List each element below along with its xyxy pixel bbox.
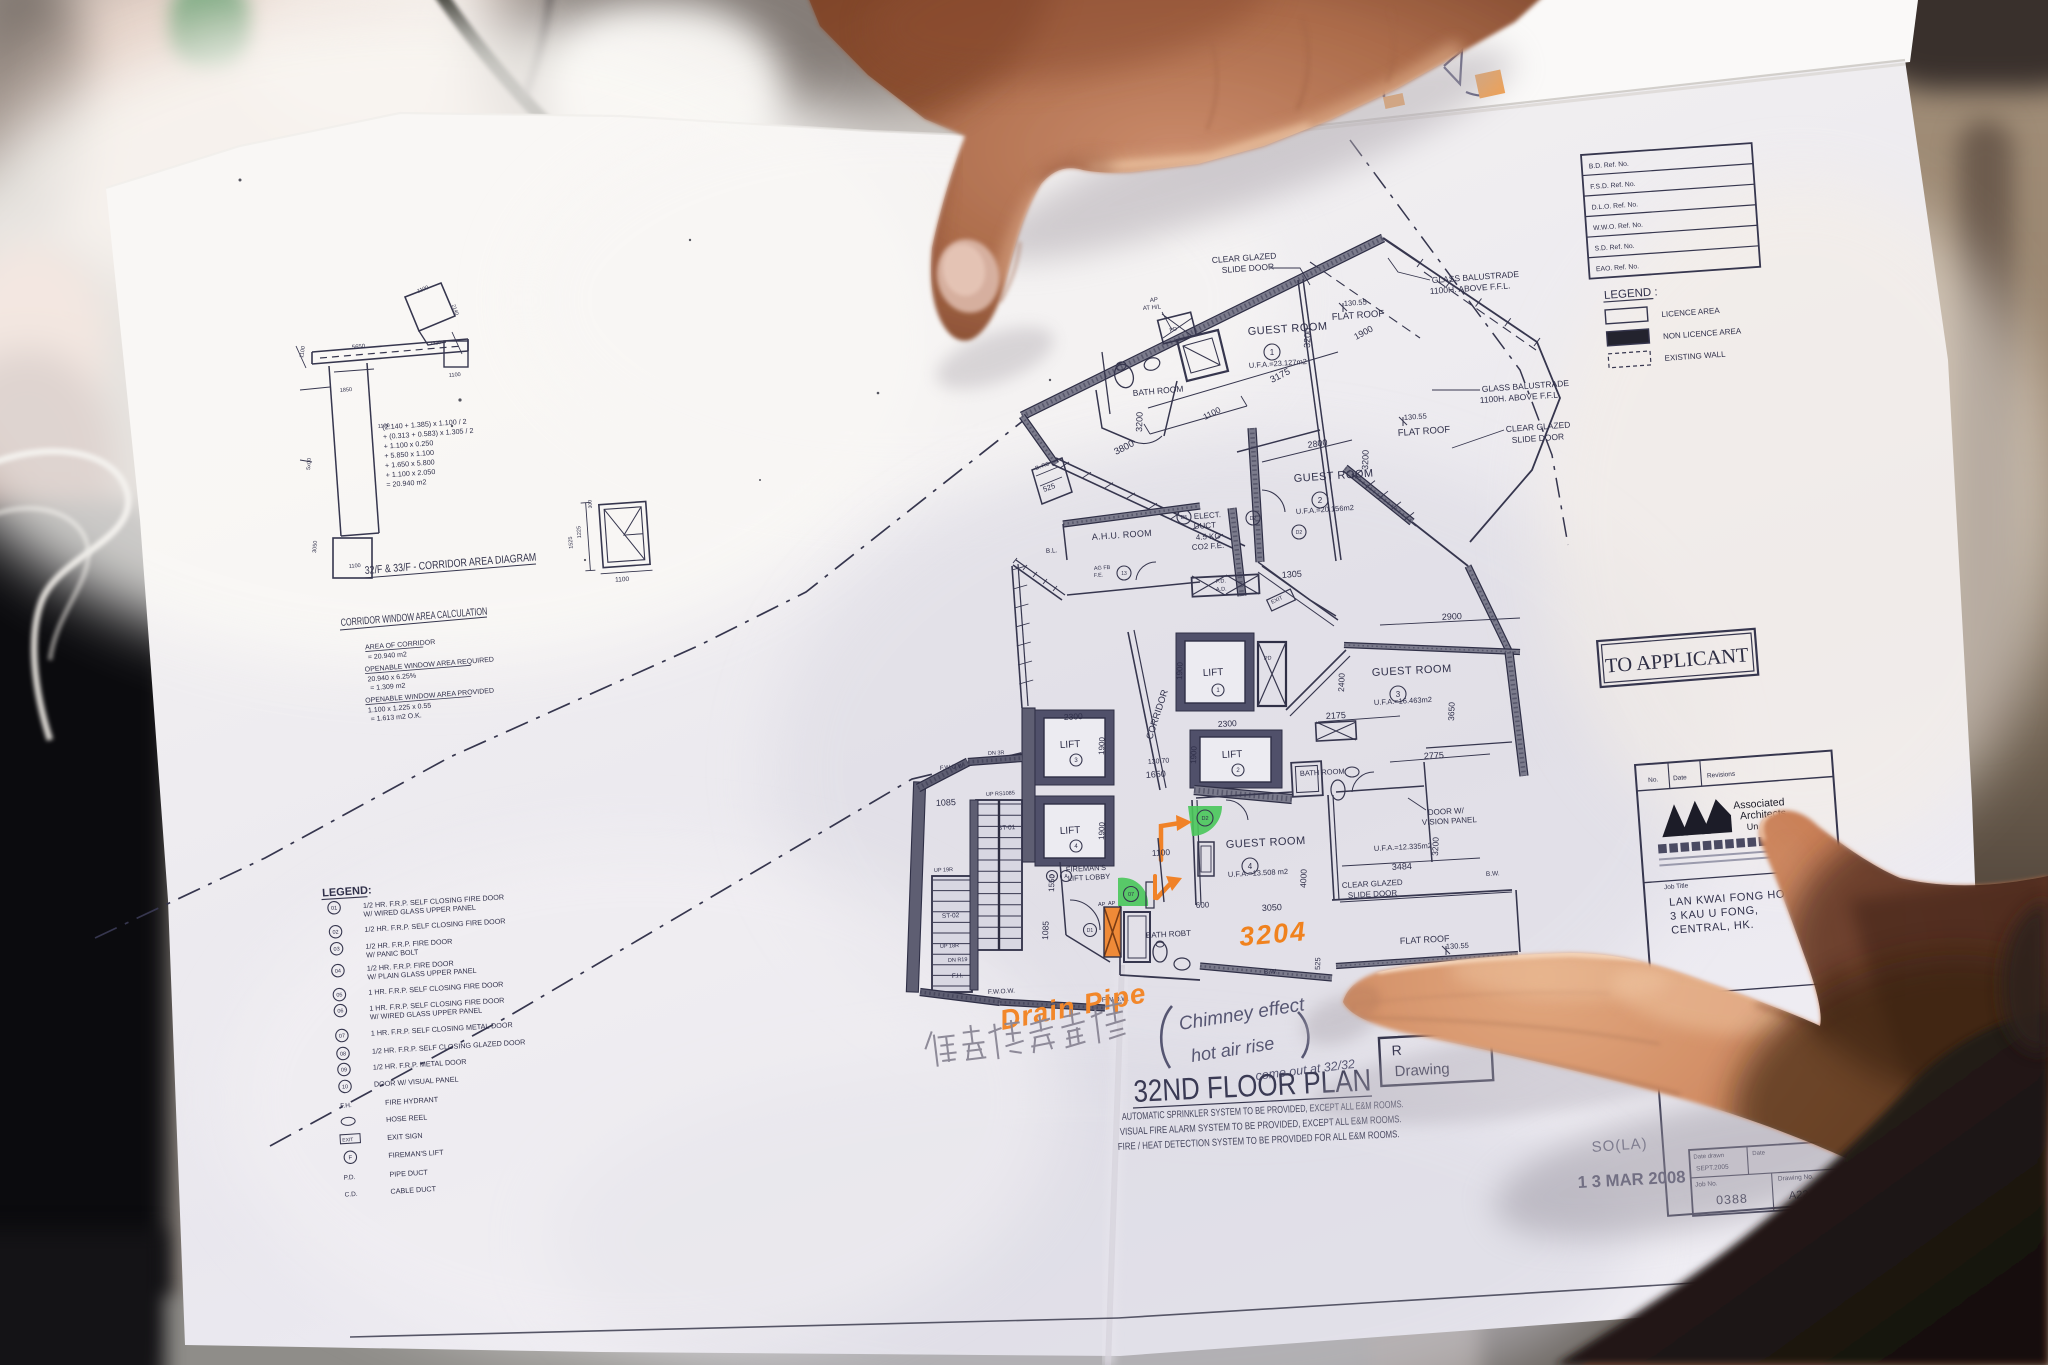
svg-text:2300: 2300 — [1064, 711, 1084, 722]
svg-text:2900: 2900 — [1442, 611, 1463, 622]
svg-text:5650: 5650 — [352, 344, 366, 351]
svg-text:1900: 1900 — [1175, 661, 1185, 680]
svg-text:A.D.: A.D. — [1216, 586, 1227, 593]
svg-text:F.W.O.W.: F.W.O.W. — [988, 988, 1016, 996]
svg-text:D1: D1 — [1087, 928, 1094, 934]
svg-text:09: 09 — [341, 1067, 347, 1073]
svg-text:LIFT: LIFT — [1222, 749, 1243, 761]
svg-text:AP: AP — [1108, 901, 1116, 907]
svg-text:10: 10 — [342, 1084, 348, 1090]
svg-text:08: 08 — [340, 1051, 346, 1057]
svg-text:1225: 1225 — [576, 526, 583, 539]
svg-text:2: 2 — [1318, 496, 1323, 505]
svg-text:1900: 1900 — [1097, 736, 1107, 755]
svg-text:3204: 3204 — [1238, 916, 1308, 952]
svg-text:No.: No. — [1648, 776, 1659, 784]
svg-text:ELECT.: ELECT. — [1194, 510, 1222, 521]
svg-text:300: 300 — [587, 500, 594, 509]
svg-text:525: 525 — [1313, 957, 1322, 970]
svg-text:AP: AP — [1150, 297, 1159, 304]
svg-text:D2: D2 — [1250, 516, 1257, 522]
svg-text:P.D.: P.D. — [1216, 578, 1227, 585]
svg-text:1100: 1100 — [1152, 847, 1171, 858]
svg-text:05: 05 — [336, 992, 342, 998]
svg-text:3200: 3200 — [1134, 412, 1145, 432]
svg-text:3050: 3050 — [312, 540, 319, 553]
svg-text:B.L.: B.L. — [1046, 547, 1058, 555]
svg-text:LIFT: LIFT — [1203, 667, 1224, 679]
svg-text:D5: D5 — [1181, 515, 1188, 521]
svg-text:130.70: 130.70 — [1148, 758, 1170, 766]
svg-text:LIFT: LIFT — [1060, 739, 1081, 751]
svg-text:1320: 1320 — [430, 340, 442, 347]
svg-text:07: 07 — [1128, 892, 1134, 898]
svg-text:06: 06 — [337, 1008, 343, 1014]
svg-text:1850: 1850 — [340, 387, 353, 394]
svg-text:3484: 3484 — [1392, 861, 1413, 872]
svg-text:P.D.: P.D. — [343, 1174, 355, 1182]
svg-text:D2: D2 — [1201, 816, 1208, 822]
svg-text:1550: 1550 — [1047, 873, 1057, 892]
svg-text:03: 03 — [333, 947, 339, 953]
svg-text:1305: 1305 — [1281, 569, 1302, 580]
svg-text:Un: Un — [1746, 821, 1758, 832]
svg-text:1085: 1085 — [936, 797, 957, 808]
svg-text:3650: 3650 — [1446, 702, 1457, 722]
svg-text:3200: 3200 — [1302, 328, 1313, 348]
svg-text:C.D.: C.D. — [344, 1191, 358, 1199]
svg-text:1100: 1100 — [449, 372, 461, 379]
svg-text:DN 3R: DN 3R — [988, 750, 1005, 757]
svg-text:1085: 1085 — [1040, 921, 1051, 941]
svg-text:1100: 1100 — [349, 563, 361, 570]
svg-text:1900: 1900 — [1097, 821, 1107, 840]
svg-text:UP 19R: UP 19R — [934, 867, 953, 874]
svg-text:1900: 1900 — [1189, 745, 1199, 764]
svg-text:2400: 2400 — [1336, 673, 1347, 693]
svg-text:ST-02: ST-02 — [942, 912, 960, 920]
svg-text:4000: 4000 — [1298, 869, 1309, 889]
svg-text:B.W.: B.W. — [1264, 968, 1278, 976]
svg-text:07: 07 — [339, 1033, 345, 1039]
svg-text:1100: 1100 — [615, 576, 630, 584]
svg-text:PD: PD — [1264, 656, 1272, 662]
svg-text:DN R19: DN R19 — [948, 957, 968, 964]
svg-text:3050: 3050 — [1262, 902, 1283, 913]
svg-text:DUCT: DUCT — [1194, 520, 1217, 531]
svg-text:F.E.: F.E. — [1094, 572, 1104, 579]
svg-text:1: 1 — [1270, 348, 1275, 357]
svg-text:R: R — [1391, 1042, 1402, 1059]
svg-text:01: 01 — [331, 906, 337, 912]
svg-text:AG FB: AG FB — [1094, 565, 1111, 572]
svg-text:600: 600 — [1196, 900, 1210, 910]
svg-text:ST-01: ST-01 — [998, 824, 1016, 832]
svg-text:5x00: 5x00 — [306, 458, 313, 470]
svg-text:LIFT: LIFT — [1060, 825, 1081, 837]
svg-text:2300: 2300 — [1218, 718, 1238, 729]
svg-text:13: 13 — [1121, 571, 1127, 577]
svg-text:Date: Date — [1673, 774, 1688, 782]
svg-text:130.55: 130.55 — [1404, 411, 1428, 422]
svg-text:02: 02 — [332, 930, 338, 936]
svg-text:D2: D2 — [1296, 530, 1303, 536]
svg-text:F.H.: F.H. — [340, 1102, 352, 1110]
svg-text:UP 18R: UP 18R — [940, 943, 959, 950]
svg-text:2775: 2775 — [1424, 750, 1445, 761]
svg-text:130.55: 130.55 — [1446, 941, 1469, 951]
svg-text:2175: 2175 — [1326, 710, 1347, 721]
svg-text:1525: 1525 — [568, 536, 575, 549]
svg-text:EXIT: EXIT — [342, 1137, 353, 1144]
svg-text:B.W.: B.W. — [1486, 870, 1500, 878]
svg-text:F.H.: F.H. — [952, 972, 964, 980]
svg-text:04: 04 — [335, 968, 341, 974]
svg-text:F: F — [348, 1155, 352, 1161]
